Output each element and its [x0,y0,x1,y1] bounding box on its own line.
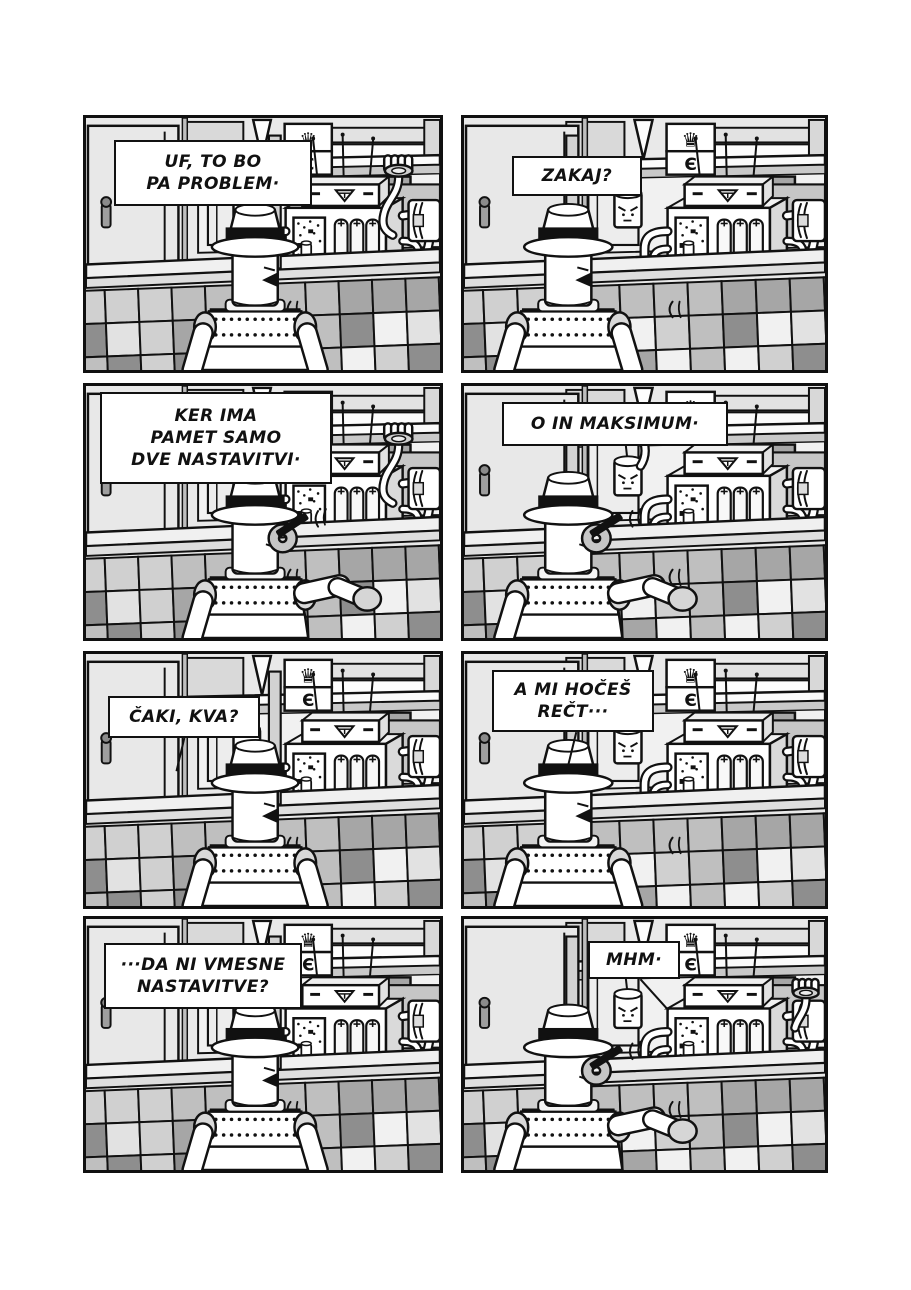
roll-box [793,468,825,509]
comic-page: ♛Є UF, TO BO PA PROBLEM· ♛Є ZAKAJ? ♛Є KE… [0,0,911,1290]
roll-box [409,468,440,509]
speech-bubble-2: ZAKAJ? [512,156,642,196]
roll-box [793,200,825,241]
door-handle [101,197,111,227]
door-handle [480,465,490,495]
door-handle [480,733,490,763]
claw-hand [793,982,818,998]
speech-bubble-3: KER IMA PAMET SAMO DVE NASTAVITVI· [100,392,332,484]
letter-e-icon: Є [684,955,697,975]
roll-box [793,736,825,777]
panel-6: ♛Є A MI HOČEŠ REČT··· [461,651,828,909]
crown-box: ♛Є [667,124,715,175]
crown-box: ♛Є [285,660,332,711]
speech-bubble-7: ···DA NI VMESNE NASTAVITVE? [104,943,302,1009]
speech-bubble-6: A MI HOČEŠ REČT··· [492,670,654,732]
letter-e-icon: Є [684,690,697,710]
panel-3: ♛Є KER IMA PAMET SAMO DVE NASTAVITVI· [83,383,443,641]
speech-bubble-1: UF, TO BO PA PROBLEM· [114,140,312,206]
panel-2: ♛Є ZAKAJ? [461,115,828,373]
roll-box [409,200,440,241]
claw-hand [385,159,413,177]
roll-box [409,1001,440,1042]
letter-e-icon: Є [302,691,314,710]
speech-bubble-4: O IN MAKSIMUM· [502,402,728,446]
panel-4: ♛Є O IN MAKSIMUM· [461,383,828,641]
letter-e-icon: Є [302,956,314,975]
letter-e-icon: Є [684,154,697,174]
panel-1: ♛Є UF, TO BO PA PROBLEM· [83,115,443,373]
panel-7: ♛Є ···DA NI VMESNE NASTAVITVE? [83,916,443,1173]
panel-8: ♛Є MHM· [461,916,828,1173]
door-handle [480,998,490,1028]
claw-hand [385,427,413,445]
door-handle [480,197,490,227]
panel-5: ♛Є ČAKI, KVA? [83,651,443,909]
panel-5-scene: ♛Є [86,654,440,906]
speech-bubble-8: MHM· [588,941,680,979]
speech-bubble-5: ČAKI, KVA? [108,696,260,738]
roll-box [409,736,440,777]
crown-box: ♛Є [667,660,715,711]
